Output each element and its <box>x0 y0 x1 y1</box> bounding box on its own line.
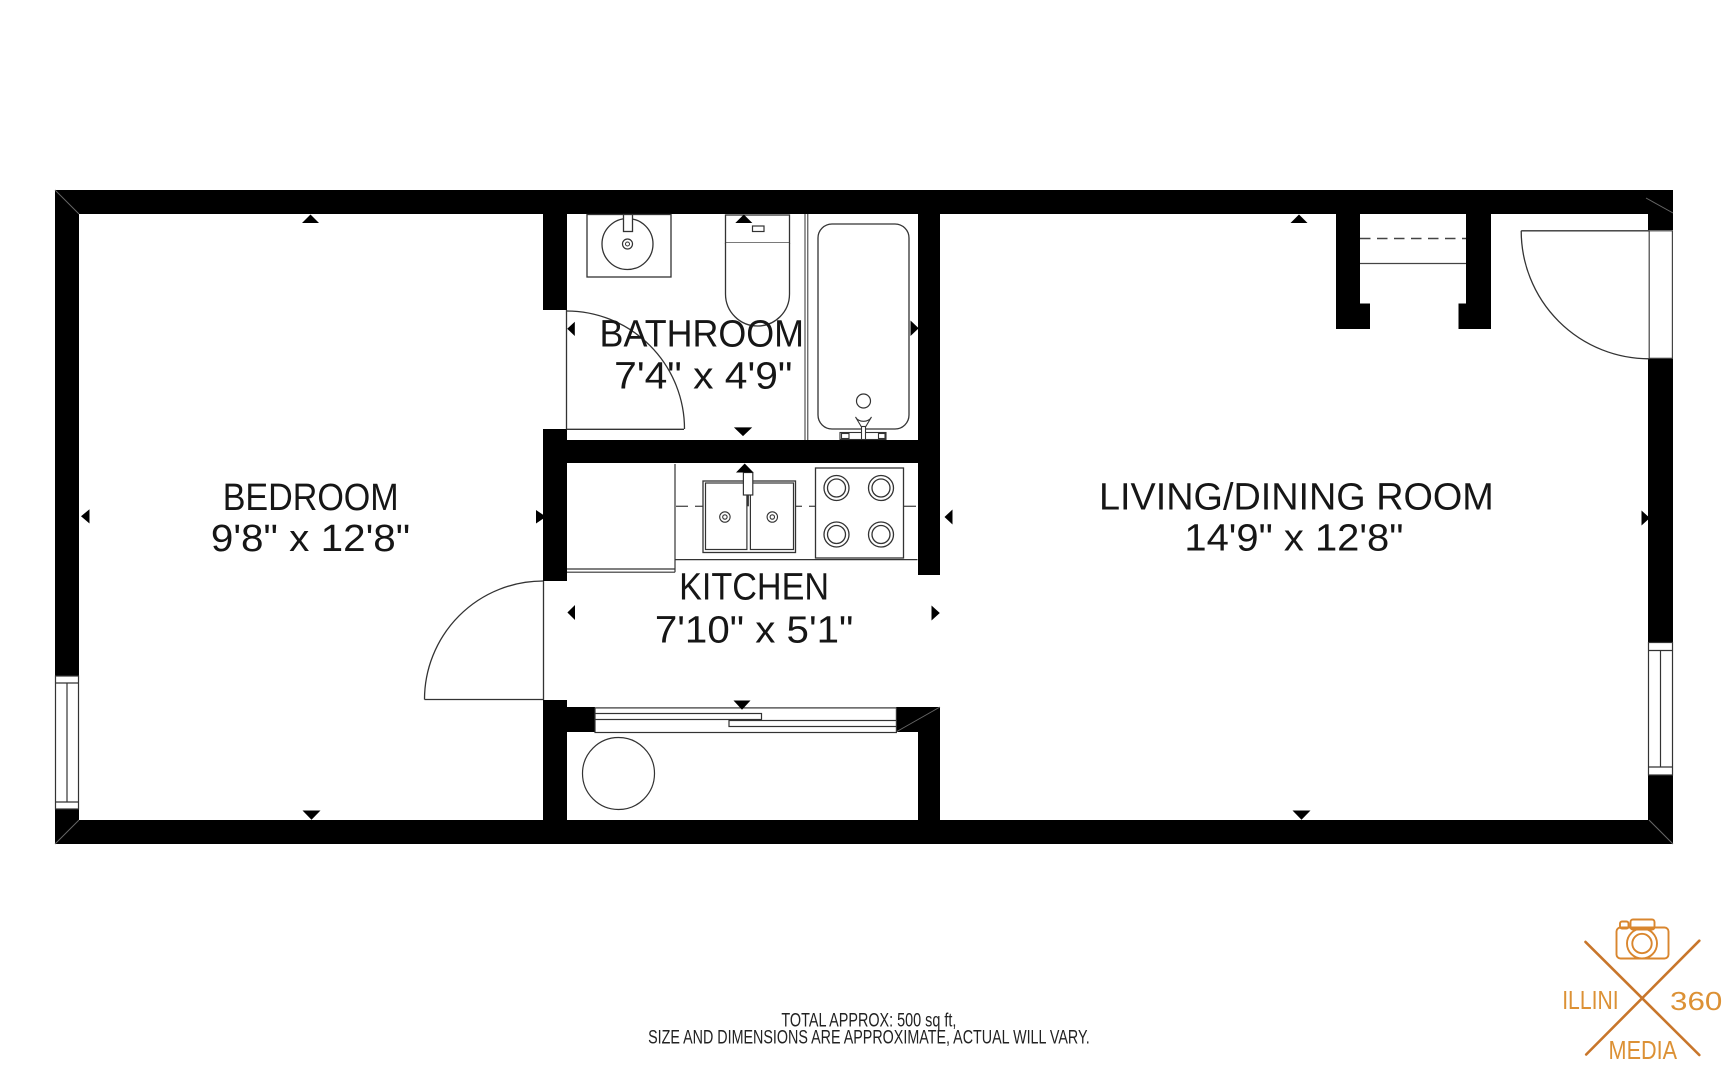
svg-text:7'10" x 5'1": 7'10" x 5'1" <box>655 610 854 652</box>
svg-text:360: 360 <box>1670 986 1722 1016</box>
svg-text:KITCHEN: KITCHEN <box>679 567 829 609</box>
svg-text:ILLINI: ILLINI <box>1562 985 1618 1015</box>
svg-text:SIZE AND DIMENSIONS ARE APPROX: SIZE AND DIMENSIONS ARE APPROXIMATE, ACT… <box>648 1028 1090 1049</box>
svg-text:BATHROOM: BATHROOM <box>600 313 805 355</box>
svg-text:14'9" x 12'8": 14'9" x 12'8" <box>1184 517 1403 559</box>
svg-text:BEDROOM: BEDROOM <box>223 477 399 519</box>
svg-text:9'8" x 12'8": 9'8" x 12'8" <box>211 518 410 560</box>
svg-text:MEDIA: MEDIA <box>1609 1035 1678 1065</box>
svg-text:7'4" x 4'9": 7'4" x 4'9" <box>614 356 792 398</box>
svg-text:LIVING/DINING ROOM: LIVING/DINING ROOM <box>1099 477 1494 519</box>
